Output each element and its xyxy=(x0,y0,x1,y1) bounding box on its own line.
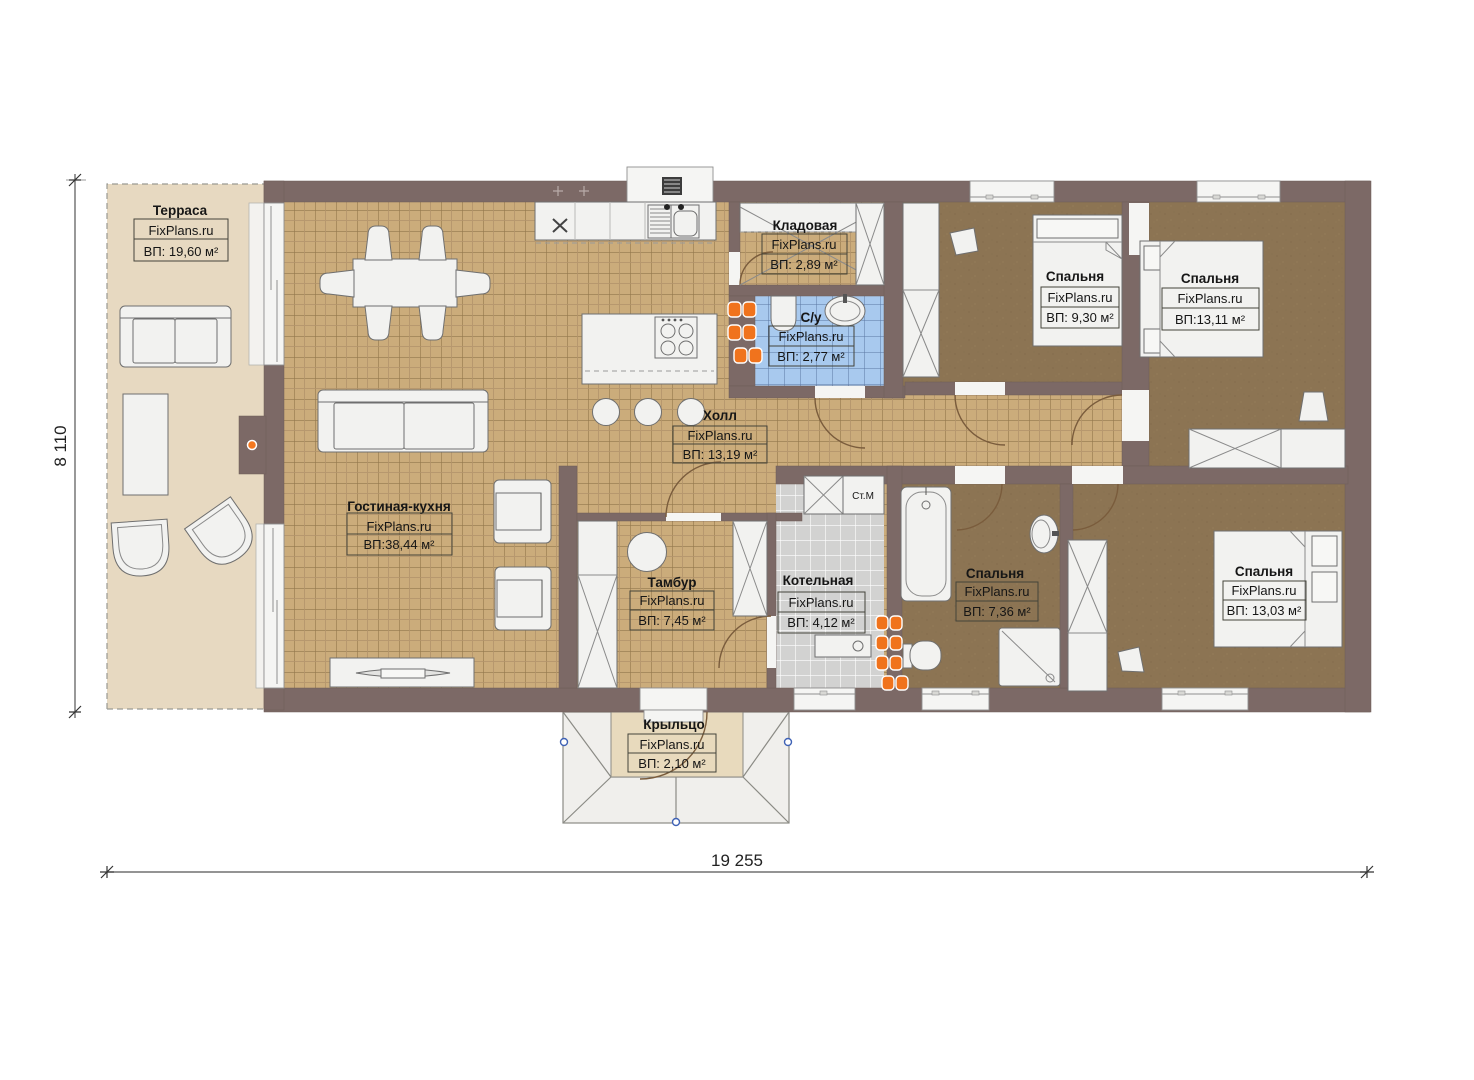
svg-text:FixPlans.ru: FixPlans.ru xyxy=(964,584,1029,599)
svg-text:Котельная: Котельная xyxy=(783,573,854,588)
svg-text:Спальня: Спальня xyxy=(1235,564,1293,579)
svg-text:ВП:13,11 м²: ВП:13,11 м² xyxy=(1175,312,1246,327)
svg-text:ВП:38,44 м²: ВП:38,44 м² xyxy=(363,537,435,552)
svg-text:ВП: 13,03 м²: ВП: 13,03 м² xyxy=(1227,603,1302,618)
svg-text:Кладовая: Кладовая xyxy=(773,218,838,233)
svg-text:Спальня: Спальня xyxy=(966,566,1024,581)
svg-text:ВП: 19,60 м²: ВП: 19,60 м² xyxy=(144,244,219,259)
svg-text:ВП: 2,89 м²: ВП: 2,89 м² xyxy=(770,257,838,272)
svg-text:FixPlans.ru: FixPlans.ru xyxy=(778,329,843,344)
svg-text:19 255: 19 255 xyxy=(711,851,763,870)
svg-text:Спальня: Спальня xyxy=(1181,271,1239,286)
svg-text:Гостиная-кухня: Гостиная-кухня xyxy=(347,499,450,514)
svg-text:FixPlans.ru: FixPlans.ru xyxy=(1047,290,1112,305)
svg-text:ВП: 7,36 м²: ВП: 7,36 м² xyxy=(963,604,1031,619)
svg-text:Спальня: Спальня xyxy=(1046,269,1104,284)
svg-text:FixPlans.ru: FixPlans.ru xyxy=(687,428,752,443)
svg-text:FixPlans.ru: FixPlans.ru xyxy=(1231,583,1296,598)
svg-text:FixPlans.ru: FixPlans.ru xyxy=(788,595,853,610)
svg-text:ВП: 7,45 м²: ВП: 7,45 м² xyxy=(638,613,706,628)
svg-text:8 110: 8 110 xyxy=(51,425,70,466)
svg-text:FixPlans.ru: FixPlans.ru xyxy=(639,737,704,752)
svg-text:ВП: 2,10 м²: ВП: 2,10 м² xyxy=(638,756,706,771)
svg-text:FixPlans.ru: FixPlans.ru xyxy=(148,223,213,238)
svg-text:Холл: Холл xyxy=(703,408,737,423)
svg-text:Ст.М: Ст.М xyxy=(852,491,874,502)
svg-text:Крыльцо: Крыльцо xyxy=(643,717,704,732)
svg-text:Тамбур: Тамбур xyxy=(648,575,697,590)
svg-text:FixPlans.ru: FixPlans.ru xyxy=(771,237,836,252)
svg-text:ВП: 9,30 м²: ВП: 9,30 м² xyxy=(1046,310,1114,325)
svg-text:Терраса: Терраса xyxy=(153,203,208,218)
svg-text:ВП: 13,19 м²: ВП: 13,19 м² xyxy=(683,447,758,462)
svg-text:С/у: С/у xyxy=(800,310,822,325)
svg-text:FixPlans.ru: FixPlans.ru xyxy=(639,593,704,608)
svg-text:FixPlans.ru: FixPlans.ru xyxy=(1177,291,1242,306)
svg-text:ВП: 2,77 м²: ВП: 2,77 м² xyxy=(777,349,845,364)
svg-text:FixPlans.ru: FixPlans.ru xyxy=(366,519,431,534)
svg-text:ВП: 4,12 м²: ВП: 4,12 м² xyxy=(787,615,855,630)
